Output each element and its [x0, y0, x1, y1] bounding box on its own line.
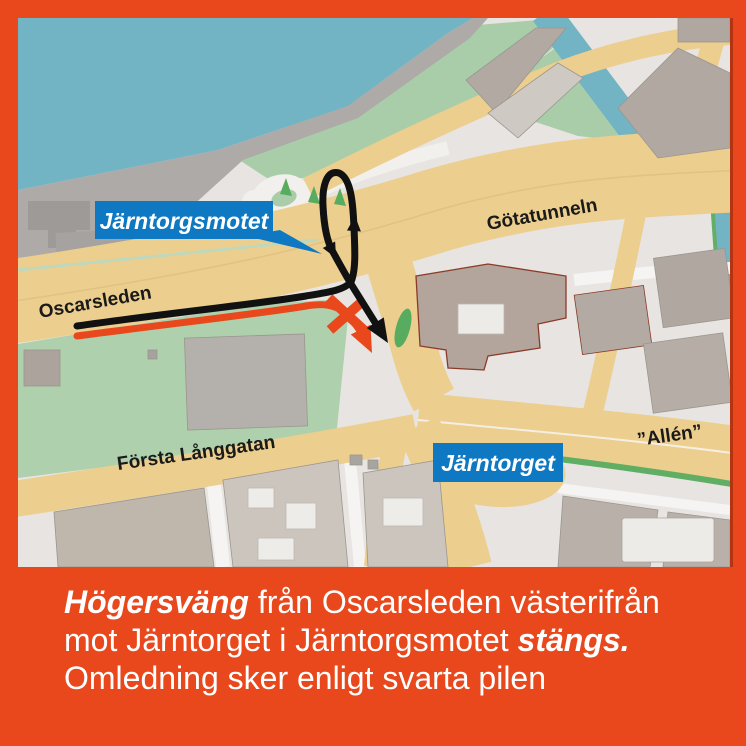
- callout-jarntorget: Järntorget: [433, 443, 563, 482]
- caption: Högersväng från Oscarsleden västerifrån …: [64, 583, 724, 697]
- caption-line-1-rest: från Oscarsleden västerifrån: [249, 584, 660, 620]
- caption-line-1-bold: Högersväng: [64, 584, 249, 620]
- map-svg: Oscarsleden Götatunneln Första Långgatan…: [18, 18, 730, 567]
- callout-jarntorget-label: Järntorget: [441, 450, 556, 476]
- caption-line-2-pre: mot Järntorget i Järntorgsmotet: [64, 622, 518, 658]
- callout-jarntorgsmotet-label: Järntorgsmotet: [100, 208, 270, 234]
- caption-line-3: Omledning sker enligt svarta pilen: [64, 659, 724, 697]
- caption-line-2: mot Järntorget i Järntorgsmotet stängs.: [64, 621, 724, 659]
- caption-line-2-bold: stängs.: [518, 622, 630, 658]
- map-panel: Oscarsleden Götatunneln Första Långgatan…: [18, 18, 733, 567]
- caption-line-3-text: Omledning sker enligt svarta pilen: [64, 660, 546, 696]
- infographic-frame: Oscarsleden Götatunneln Första Långgatan…: [0, 0, 746, 746]
- caption-line-1: Högersväng från Oscarsleden västerifrån: [64, 583, 724, 621]
